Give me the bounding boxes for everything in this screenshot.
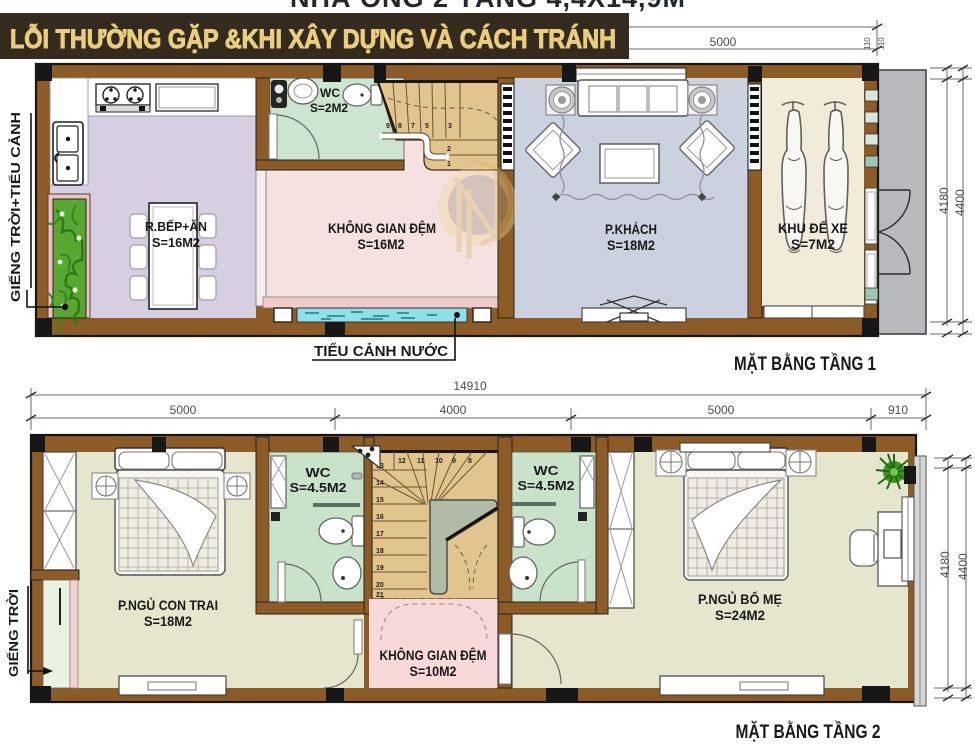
svg-text:WC: WC <box>534 463 560 478</box>
svg-text:10: 10 <box>435 458 443 465</box>
svg-text:5000: 5000 <box>708 403 735 417</box>
svg-text:17: 17 <box>376 531 384 538</box>
svg-text:S=24M2: S=24M2 <box>715 608 765 623</box>
svg-text:P.NGỦ CON TRAI: P.NGỦ CON TRAI <box>118 598 218 613</box>
svg-text:R.BẾP+ĂN: R.BẾP+ĂN <box>145 219 207 234</box>
svg-text:S=2M2: S=2M2 <box>310 103 348 115</box>
svg-text:NHÀ ỐNG 2 TẦNG 4,4X14,9M: NHÀ ỐNG 2 TẦNG 4,4X14,9M <box>290 0 686 13</box>
svg-text:P.KHÁCH: P.KHÁCH <box>605 222 657 237</box>
svg-text:5: 5 <box>425 123 429 130</box>
svg-text:LỖI THƯỜNG GẶP &KHI XÂY DỰNG V: LỖI THƯỜNG GẶP &KHI XÂY DỰNG VÀ CÁCH TRÁ… <box>10 23 616 54</box>
svg-text:4400: 4400 <box>956 553 970 580</box>
svg-text:S=10M2: S=10M2 <box>410 664 457 679</box>
svg-text:14910: 14910 <box>453 379 487 393</box>
svg-text:4180: 4180 <box>937 187 951 214</box>
svg-text:P.NGỦ BỐ MẸ: P.NGỦ BỐ MẸ <box>698 592 782 607</box>
svg-text:KHÔNG GIAN ĐỆM: KHÔNG GIAN ĐỆM <box>328 219 436 236</box>
svg-text:S=16M2: S=16M2 <box>358 237 405 252</box>
svg-text:S=4.5M2: S=4.5M2 <box>518 478 575 493</box>
svg-text:16: 16 <box>376 514 384 521</box>
svg-text:110: 110 <box>863 37 872 50</box>
svg-text:S=4.5M2: S=4.5M2 <box>290 480 347 495</box>
svg-text:8: 8 <box>468 458 472 465</box>
svg-text:TIỂU CẢNH NƯỚC: TIỂU CẢNH NƯỚC <box>314 342 449 360</box>
svg-text:GIẾNG TRỜI+TIỂU CẢNH: GIẾNG TRỜI+TIỂU CẢNH <box>8 112 23 302</box>
svg-text:9: 9 <box>452 458 456 465</box>
svg-text:5000: 5000 <box>170 403 197 417</box>
svg-text:15: 15 <box>376 497 384 504</box>
svg-text:7: 7 <box>411 123 415 130</box>
svg-text:12: 12 <box>398 458 406 465</box>
svg-text:14: 14 <box>376 480 384 487</box>
svg-text:1: 1 <box>447 161 451 168</box>
svg-text:11: 11 <box>417 458 425 465</box>
svg-text:S=7M2: S=7M2 <box>791 237 835 252</box>
svg-text:WC: WC <box>320 88 340 100</box>
svg-text:KHÔNG GIAN ĐỆM: KHÔNG GIAN ĐỆM <box>380 648 487 663</box>
svg-text:KHU ĐỂ XE: KHU ĐỂ XE <box>778 221 848 236</box>
svg-text:2: 2 <box>447 146 451 153</box>
svg-text:4400: 4400 <box>953 189 967 216</box>
svg-text:S=18M2: S=18M2 <box>144 614 192 629</box>
svg-text:910: 910 <box>888 403 908 417</box>
svg-text:3: 3 <box>448 123 452 130</box>
svg-text:GIẾNG TRỜI: GIẾNG TRỜI <box>6 589 21 677</box>
svg-text:9: 9 <box>386 123 390 130</box>
svg-text:4000: 4000 <box>440 403 467 417</box>
svg-text:S=18M2: S=18M2 <box>607 238 655 253</box>
svg-text:21: 21 <box>376 592 384 599</box>
svg-text:WC: WC <box>306 465 332 480</box>
svg-text:S=16M2: S=16M2 <box>152 235 200 250</box>
svg-text:MẶT BẰNG TẦNG 2: MẶT BẰNG TẦNG 2 <box>736 721 881 743</box>
svg-text:18: 18 <box>376 548 384 555</box>
svg-text:4180: 4180 <box>938 551 952 578</box>
svg-text:110: 110 <box>877 37 886 50</box>
svg-text:8: 8 <box>398 123 402 130</box>
svg-text:5000: 5000 <box>710 35 737 49</box>
svg-text:20: 20 <box>376 582 384 589</box>
svg-text:19: 19 <box>376 565 384 572</box>
svg-text:MẶT BẰNG TẦNG 1: MẶT BẰNG TẦNG 1 <box>734 353 876 375</box>
